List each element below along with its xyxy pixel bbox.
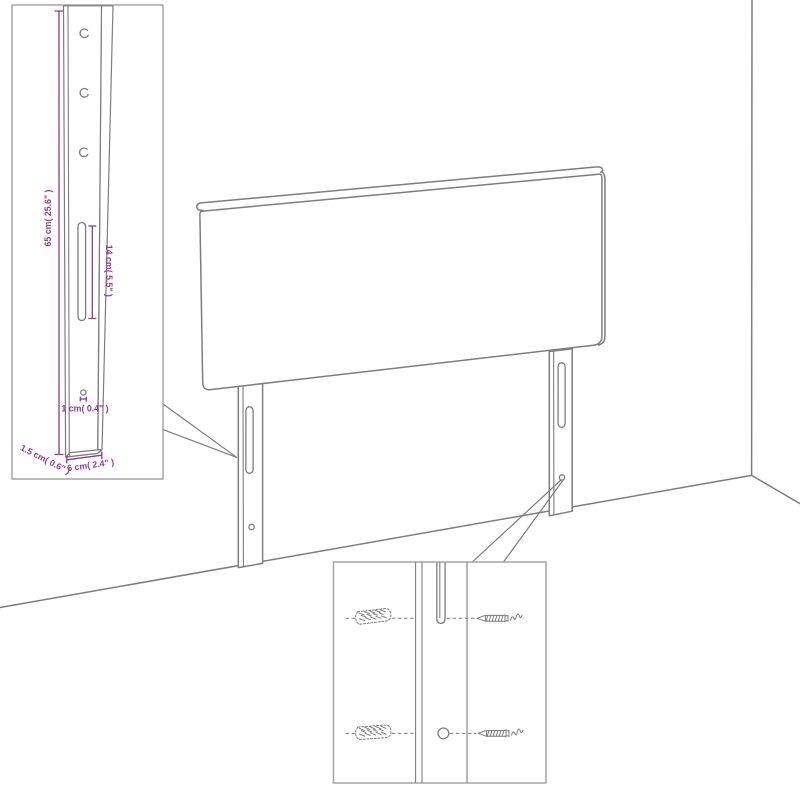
callout-lines-left-inset (163, 404, 237, 457)
headboard-panel (197, 167, 605, 390)
headboard-dimension-figure: 65 cm( 25.6" ) 14 cm( 5.5" ) 1 cm( 0.4" … (0, 0, 800, 800)
right-leg (549, 349, 572, 516)
right-leg-body (549, 349, 572, 516)
left-leg (238, 380, 262, 568)
leg-height-label: 65 cm( 25.6" ) (43, 189, 53, 246)
inset-leg-dimensions: 65 cm( 25.6" ) 14 cm( 5.5" ) 1 cm( 0.4" … (12, 5, 163, 479)
hole-diameter-label: 1 cm( 0.4" ) (61, 404, 108, 414)
inset-mounting-hardware (334, 562, 547, 783)
wall-floor-line-right (752, 475, 800, 503)
slot-length-label: 14 cm( 5.5" ) (104, 245, 114, 297)
headboard-front-face (200, 174, 602, 390)
product-diagram: 65 cm( 25.6" ) 14 cm( 5.5" ) 1 cm( 0.4" … (0, 0, 800, 800)
